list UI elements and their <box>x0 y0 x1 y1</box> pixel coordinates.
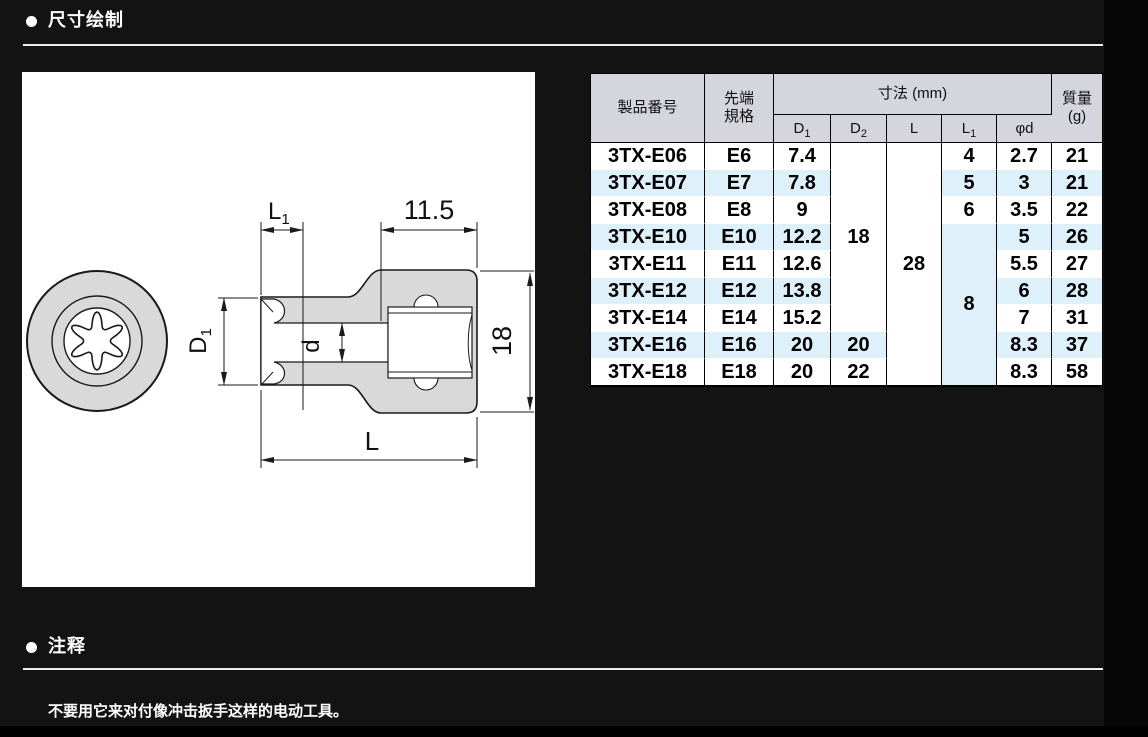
cell-phid: 3 <box>997 169 1052 196</box>
cell-d1: 20 <box>774 331 831 358</box>
dim-label-d1: D1 <box>185 328 215 354</box>
cell-product: 3TX-E08 <box>591 196 705 223</box>
dim-label-l: L <box>365 426 379 456</box>
cell-l: 28 <box>887 143 942 385</box>
cell-product: 3TX-E11 <box>591 250 705 277</box>
cell-mass: 26 <box>1052 223 1102 250</box>
cell-l1: 4 <box>942 143 997 169</box>
header-tip-line2: 規格 <box>705 108 773 126</box>
header-d2: D2 <box>831 115 887 143</box>
front-view <box>27 271 167 411</box>
cell-l1: 5 <box>942 169 997 196</box>
cell-product: 3TX-E12 <box>591 277 705 304</box>
cell-tip: E11 <box>705 250 774 277</box>
cell-d1: 7.4 <box>774 143 831 169</box>
cell-l1: 8 <box>942 223 997 385</box>
content-area: 尺寸绘制 <box>0 0 1104 726</box>
cell-d1: 12.2 <box>774 223 831 250</box>
section-bullet-icon <box>26 642 37 653</box>
cell-phid: 8.3 <box>997 331 1052 358</box>
cell-d2: 18 <box>831 143 887 331</box>
cell-d1: 12.6 <box>774 250 831 277</box>
cell-d1: 13.8 <box>774 277 831 304</box>
cell-phid: 5 <box>997 223 1052 250</box>
page: 尺寸绘制 <box>0 0 1148 737</box>
header-l1: L1 <box>942 115 997 143</box>
cell-tip: E16 <box>705 331 774 358</box>
dim-label-18: 18 <box>487 326 517 356</box>
cell-product: 3TX-E10 <box>591 223 705 250</box>
cell-d2: 20 <box>831 331 887 358</box>
cell-phid: 6 <box>997 277 1052 304</box>
cell-d2: 22 <box>831 358 887 385</box>
cell-product: 3TX-E16 <box>591 331 705 358</box>
cell-tip: E14 <box>705 304 774 331</box>
cell-phid: 5.5 <box>997 250 1052 277</box>
side-view <box>261 270 477 413</box>
cell-d1: 20 <box>774 358 831 385</box>
header-tip-spec: 先端 規格 <box>705 74 774 143</box>
cell-tip: E7 <box>705 169 774 196</box>
cell-mass: 21 <box>1052 169 1102 196</box>
cell-l1: 6 <box>942 196 997 223</box>
header-tip-line1: 先端 <box>705 90 773 108</box>
cell-tip: E18 <box>705 358 774 385</box>
cell-phid: 2.7 <box>997 143 1052 169</box>
cell-mass: 31 <box>1052 304 1102 331</box>
cell-phid: 8.3 <box>997 358 1052 385</box>
cell-mass: 28 <box>1052 277 1102 304</box>
cell-mass: 58 <box>1052 358 1102 385</box>
section-divider <box>23 44 1103 46</box>
dimension-drawing-panel: L1 11.5 D1 d 18 L <box>22 72 535 587</box>
spec-table: 製品番号 先端 規格 寸法 (mm) 質量 (g) D1 D2 L L1 <box>590 73 1103 387</box>
dim-label-11-5: 11.5 <box>404 195 455 225</box>
table-row: 3TX-E18E1820228.358 <box>591 358 1102 385</box>
dim-label-d: d <box>298 339 325 352</box>
cell-product: 3TX-E14 <box>591 304 705 331</box>
cell-tip: E10 <box>705 223 774 250</box>
cell-tip: E6 <box>705 143 774 169</box>
header-mass: 質量 (g) <box>1052 74 1102 143</box>
socket-drawing-svg: L1 11.5 D1 d 18 L <box>22 72 535 587</box>
section-divider <box>23 668 1103 670</box>
cell-d1: 9 <box>774 196 831 223</box>
header-mass-line2: (g) <box>1052 108 1102 126</box>
cell-tip: E12 <box>705 277 774 304</box>
section-title-notes: 注释 <box>48 635 86 657</box>
cell-mass: 37 <box>1052 331 1102 358</box>
header-mass-line1: 質量 <box>1052 90 1102 108</box>
table-row: 3TX-E16E1620208.337 <box>591 331 1102 358</box>
cell-mass: 21 <box>1052 143 1102 169</box>
cell-d1: 7.8 <box>774 169 831 196</box>
cell-product: 3TX-E06 <box>591 143 705 169</box>
header-product: 製品番号 <box>591 74 705 143</box>
header-dims-group: 寸法 (mm) <box>774 74 1052 115</box>
header-d1: D1 <box>774 115 831 143</box>
cell-product: 3TX-E18 <box>591 358 705 385</box>
cell-phid: 7 <box>997 304 1052 331</box>
cell-product: 3TX-E07 <box>591 169 705 196</box>
cell-phid: 3.5 <box>997 196 1052 223</box>
header-l: L <box>887 115 942 143</box>
header-phid: φd <box>997 115 1052 143</box>
section-title-dimension-drawing: 尺寸绘制 <box>48 9 124 31</box>
table-row: 3TX-E06E67.4182842.721 <box>591 143 1102 169</box>
spec-table-body: 3TX-E06E67.4182842.7213TX-E07E77.853213T… <box>591 143 1102 385</box>
square-drive-hole <box>388 307 472 378</box>
note-text: 不要用它来对付像冲击扳手这样的电动工具。 <box>48 700 348 721</box>
cell-mass: 27 <box>1052 250 1102 277</box>
cell-mass: 22 <box>1052 196 1102 223</box>
cell-d1: 15.2 <box>774 304 831 331</box>
dim-label-l1: L1 <box>268 198 290 228</box>
footer-strip <box>0 726 1148 737</box>
section-bullet-icon <box>26 16 37 27</box>
cell-tip: E8 <box>705 196 774 223</box>
